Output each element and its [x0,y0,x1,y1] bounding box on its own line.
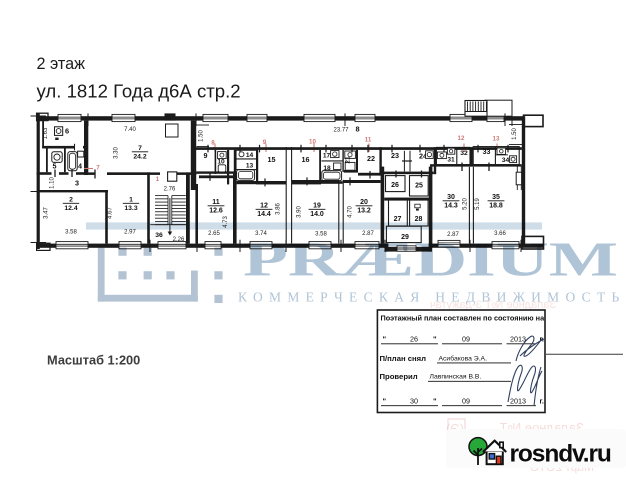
svg-text:1: 1 [129,197,133,204]
svg-text:Поэтажный план составлен по со: Поэтажный план составлен по состоянию на [381,314,546,323]
svg-text:3: 3 [75,179,79,188]
svg-text:Масштаб 1:200: Масштаб 1:200 [47,353,140,368]
svg-text:2.26: 2.26 [173,237,185,243]
svg-text:17: 17 [323,153,331,160]
svg-text:12.4: 12.4 [64,205,77,212]
svg-text:3.30: 3.30 [114,147,120,159]
svg-text:rosndv.ru: rosndv.ru [510,441,611,468]
svg-text:33: 33 [483,149,491,156]
svg-text:12: 12 [458,135,465,142]
svg-text:5.19: 5.19 [475,198,481,210]
svg-text:ул. 1812 Года д6А стр.2: ул. 1812 Года д6А стр.2 [37,81,241,102]
svg-text:8: 8 [355,125,359,134]
svg-text:Проверил: Проверил [380,372,418,381]
svg-text:23: 23 [391,151,399,160]
svg-text:22: 22 [367,154,375,163]
svg-text:09: 09 [462,335,470,344]
svg-text:7: 7 [96,165,100,172]
svg-text:3.86: 3.86 [276,203,282,215]
svg-text:18.8: 18.8 [489,202,503,209]
svg-text:2013: 2013 [510,396,526,405]
svg-text:11: 11 [212,199,220,206]
svg-text:П/план снял: П/план снял [380,354,427,363]
svg-text:11: 11 [365,137,372,144]
svg-text:3.90: 3.90 [297,206,303,218]
svg-text:36: 36 [155,232,163,239]
svg-text:32: 32 [460,150,468,157]
svg-text:4.67: 4.67 [108,207,114,219]
svg-text:4: 4 [78,162,82,171]
svg-text:1.50: 1.50 [199,130,205,142]
svg-text:2.97: 2.97 [124,230,136,236]
svg-text:5: 5 [53,162,57,171]
svg-text:": " [383,335,387,344]
svg-text:20: 20 [360,199,368,206]
svg-text:": " [383,396,387,405]
svg-text:09: 09 [462,396,470,405]
svg-text:1.10: 1.10 [50,177,56,189]
svg-text:7: 7 [138,145,142,152]
svg-text:14.3: 14.3 [444,202,458,209]
svg-text:28: 28 [415,216,423,223]
svg-text:": " [433,396,437,405]
svg-text:9: 9 [204,151,208,160]
svg-text:2.76: 2.76 [164,186,176,192]
svg-text:2 этаж: 2 этаж [37,55,86,73]
svg-text:14.0: 14.0 [310,211,324,218]
svg-text:1: 1 [156,176,160,183]
svg-text:13: 13 [493,136,500,143]
svg-text:2013: 2013 [510,335,526,344]
svg-text:14.4: 14.4 [257,211,271,218]
svg-text:6: 6 [65,127,69,136]
svg-text:15: 15 [268,155,276,164]
svg-text:16: 16 [302,155,310,164]
svg-text:31: 31 [447,157,455,164]
svg-text:24.2: 24.2 [133,153,146,160]
svg-text:35: 35 [492,194,500,201]
svg-text:Лавпинская В.В.: Лавпинская В.В. [430,373,482,380]
svg-text:21: 21 [345,156,352,164]
svg-text:27: 27 [394,216,402,223]
svg-text:12.6: 12.6 [209,207,223,214]
svg-text:": " [433,335,437,344]
svg-text:26: 26 [391,182,399,189]
svg-text:34: 34 [502,157,510,164]
svg-text:13.2: 13.2 [357,207,371,214]
svg-text:2: 2 [69,197,73,204]
svg-text:7.40: 7.40 [124,127,136,133]
svg-text:Асибакова Э.А.: Асибакова Э.А. [439,355,488,363]
svg-text:3.58: 3.58 [65,230,77,236]
svg-text:4.70: 4.70 [348,206,354,218]
svg-text:13: 13 [246,163,254,170]
svg-text:30: 30 [410,396,418,405]
svg-text:12: 12 [260,203,268,210]
svg-text:5.20: 5.20 [463,198,469,210]
svg-text:26: 26 [410,335,418,344]
svg-text:30: 30 [447,194,455,201]
svg-text:23.77: 23.77 [333,128,349,134]
svg-text:13.3: 13.3 [124,205,137,212]
svg-text:10: 10 [309,139,316,146]
svg-text:PRÆDIUM: PRÆDIUM [243,232,618,287]
svg-text:19: 19 [313,203,321,210]
svg-text:14: 14 [246,152,254,159]
svg-text:1.63: 1.63 [43,127,49,139]
svg-text:25: 25 [415,183,423,190]
svg-text:1.50: 1.50 [512,128,518,140]
svg-text:2.65: 2.65 [208,231,220,237]
svg-text:г.: г. [540,396,544,405]
svg-text:3.47: 3.47 [44,207,50,219]
